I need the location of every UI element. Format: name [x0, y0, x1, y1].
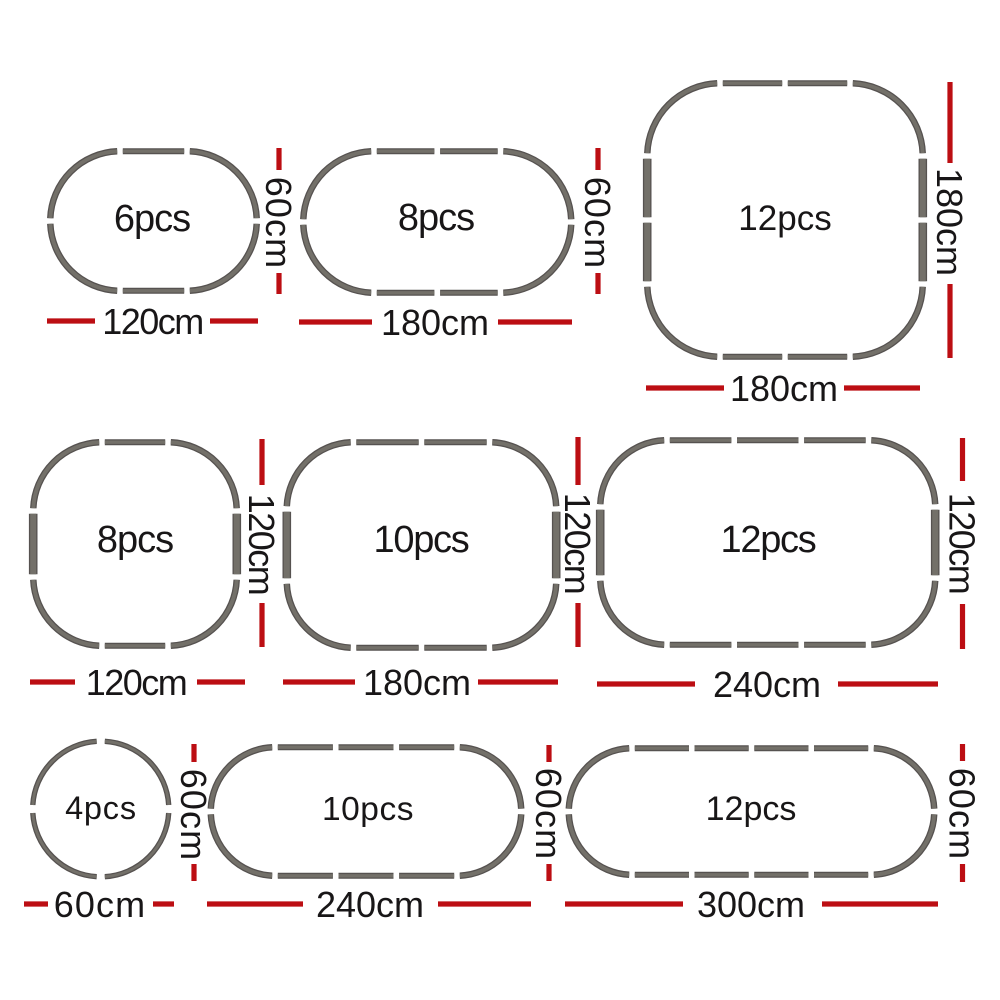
svg-text:12pcs: 12pcs — [721, 519, 816, 561]
svg-text:60cm: 60cm — [258, 177, 299, 269]
svg-text:60cm: 60cm — [942, 768, 983, 860]
svg-text:10pcs: 10pcs — [322, 791, 414, 828]
svg-text:120cm: 120cm — [86, 662, 187, 703]
svg-text:60cm: 60cm — [577, 177, 618, 269]
svg-text:240cm: 240cm — [713, 664, 821, 705]
svg-text:60cm: 60cm — [54, 884, 146, 925]
svg-text:60cm: 60cm — [528, 768, 569, 860]
svg-text:180cm: 180cm — [929, 168, 970, 276]
svg-text:240cm: 240cm — [316, 884, 424, 925]
svg-text:180cm: 180cm — [730, 368, 838, 409]
svg-text:180cm: 180cm — [363, 662, 471, 703]
svg-text:8pcs: 8pcs — [97, 519, 173, 561]
svg-text:120cm: 120cm — [942, 493, 983, 594]
svg-text:180cm: 180cm — [381, 302, 489, 343]
svg-text:6pcs: 6pcs — [114, 198, 190, 240]
svg-text:8pcs: 8pcs — [398, 197, 474, 239]
svg-text:120cm: 120cm — [241, 494, 282, 595]
svg-text:4pcs: 4pcs — [65, 790, 137, 826]
svg-text:12pcs: 12pcs — [706, 790, 797, 828]
svg-text:120cm: 120cm — [102, 301, 203, 342]
svg-text:300cm: 300cm — [697, 884, 805, 925]
svg-text:12pcs: 12pcs — [738, 199, 831, 238]
svg-text:10pcs: 10pcs — [374, 519, 469, 561]
svg-text:120cm: 120cm — [557, 493, 598, 594]
